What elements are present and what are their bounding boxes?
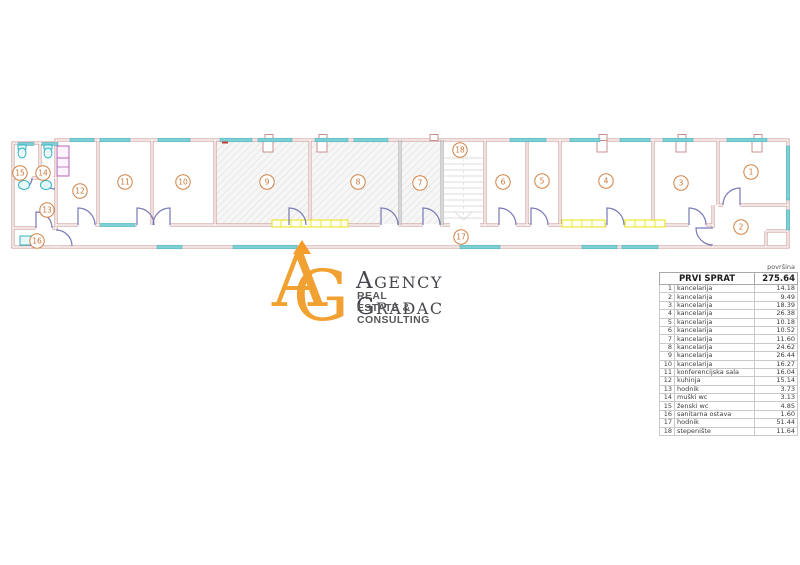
staircase xyxy=(444,158,483,220)
logo-tagline: REAL ESTATE & CONSULTING xyxy=(357,290,430,326)
table-row: 14muški wc3.13 xyxy=(660,394,798,402)
total-area: 275.64 xyxy=(755,273,798,285)
page: 123456789101112131415161718 A G Agency G… xyxy=(0,0,800,565)
room-number: 16 xyxy=(32,237,42,246)
room-number: 15 xyxy=(15,169,25,178)
table-row: 9kancelarija26.44 xyxy=(660,352,798,360)
toilet-icon xyxy=(44,148,52,158)
room-number: 17 xyxy=(456,233,466,242)
table-row: 1kancelarija14.18 xyxy=(660,285,798,293)
room-number: 14 xyxy=(38,169,48,178)
room-number: 12 xyxy=(75,187,85,196)
table-row: 4kancelarija26.38 xyxy=(660,310,798,318)
sink-icon xyxy=(41,181,52,190)
survey-mark xyxy=(222,142,228,144)
walls xyxy=(13,140,788,247)
wc-fixtures xyxy=(18,145,69,245)
floor-title: PRVI SPRAT xyxy=(660,273,755,285)
area-table: površina PRVI SPRAT 275.64 1kancelarija1… xyxy=(659,263,798,436)
room-number: 3 xyxy=(679,179,684,188)
room-number: 9 xyxy=(265,178,270,187)
hatched-rooms xyxy=(216,141,440,224)
room-number: 1 xyxy=(749,168,754,177)
table-row: 18stepenište11.64 xyxy=(660,427,798,435)
room-number: 6 xyxy=(501,178,506,187)
cabinet-icon xyxy=(57,146,69,158)
table-row: 12kuhinja15.14 xyxy=(660,377,798,385)
room-number: 4 xyxy=(604,177,609,186)
toilet-icon xyxy=(18,148,26,158)
room-number: 13 xyxy=(42,206,52,215)
room-number: 11 xyxy=(120,178,130,187)
table-row: 17hodnik51.44 xyxy=(660,419,798,427)
table-row: 6kancelarija10.52 xyxy=(660,326,798,334)
room-number: 7 xyxy=(418,179,423,188)
room-number: 10 xyxy=(178,178,188,187)
area-column-label: površina xyxy=(659,263,798,272)
room-number: 5 xyxy=(540,177,545,186)
room-number: 18 xyxy=(455,146,465,155)
room-number: 2 xyxy=(739,223,744,232)
table-row: 7kancelarija11.60 xyxy=(660,335,798,343)
table-header-row: PRVI SPRAT 275.64 xyxy=(660,273,798,285)
sink-icon xyxy=(19,181,30,190)
area-table-body: 1kancelarija14.182kancelarija9.493kancel… xyxy=(660,285,798,436)
room-number: 8 xyxy=(356,178,361,187)
logo-monogram-g-icon: G xyxy=(293,261,349,331)
